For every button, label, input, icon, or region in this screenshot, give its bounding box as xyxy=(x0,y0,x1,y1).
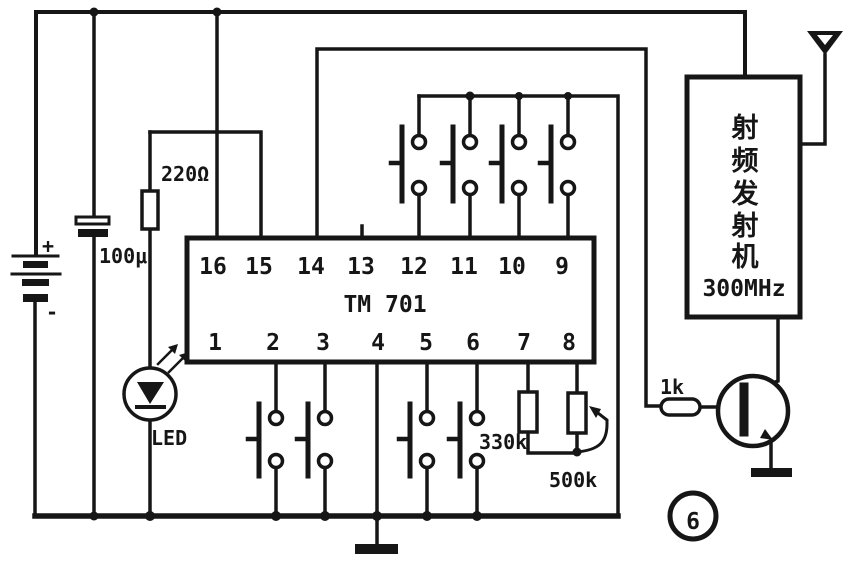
contact xyxy=(413,136,426,149)
transistor-circle xyxy=(718,376,788,446)
schematic-page: + - 100μ 220Ω LED TM 701 16 15 14 13 12 … xyxy=(0,0,855,571)
antenna-feed-wire xyxy=(800,55,825,144)
pushbutton-pin10 xyxy=(491,96,526,238)
ic-pin-11: 11 xyxy=(450,254,478,280)
potentiometer-label: 500k xyxy=(549,468,597,492)
ic-tm701: TM 701 16 15 14 13 12 11 10 9 1 2 3 4 5 … xyxy=(187,238,594,362)
ground-bar xyxy=(355,544,398,554)
contact xyxy=(270,455,283,468)
resistor-330k-label: 330k xyxy=(479,430,527,454)
junction-dot xyxy=(145,511,155,521)
resistor-1k: 1k xyxy=(660,375,700,415)
antenna-icon xyxy=(807,31,843,55)
ic-name: TM 701 xyxy=(343,292,426,318)
pushbuttons-bottom-row xyxy=(248,362,484,516)
capacitor-label: 100μ xyxy=(99,244,147,268)
battery-plate-short-3 xyxy=(23,294,48,302)
resistor-330k-body xyxy=(519,392,537,432)
resistor-220-body xyxy=(142,191,158,229)
led-label: LED xyxy=(151,426,187,450)
rf-name-char-3: 发 xyxy=(731,178,759,210)
battery-plate-short-2 xyxy=(22,279,49,286)
ic-pin-12: 12 xyxy=(400,254,428,280)
ic-pin-1: 1 xyxy=(208,330,222,356)
pushbutton-pin11 xyxy=(442,96,477,238)
junction-dot xyxy=(213,8,222,17)
circuit-schematic: + - 100μ 220Ω LED TM 701 16 15 14 13 12 … xyxy=(0,0,855,571)
pushbutton-pin9 xyxy=(540,96,575,238)
junction-dot xyxy=(271,511,281,521)
rf-frequency-label: 300MHz xyxy=(702,276,785,302)
contact xyxy=(270,412,283,425)
potentiometer-wiper-arrow xyxy=(589,406,601,418)
battery-plus-label: + xyxy=(42,234,54,258)
rf-name-char-1: 射 xyxy=(731,113,759,144)
junction-dot xyxy=(90,8,99,17)
resistor-220-label: 220Ω xyxy=(161,162,209,186)
pushbuttons-top-row xyxy=(391,96,575,238)
figure-number-badge: 6 xyxy=(670,493,716,539)
ic-pin-7: 7 xyxy=(517,330,531,356)
junction-dot xyxy=(515,92,523,100)
potentiometer-500k: 500k xyxy=(549,362,607,492)
pushbutton-pin5 xyxy=(399,362,434,516)
ic-pin-2: 2 xyxy=(266,330,280,356)
rf-name-char-4: 射 xyxy=(731,211,759,242)
rf-transmitter-box: 射 频 发 射 机 300MHz xyxy=(687,77,800,317)
contact xyxy=(562,182,575,195)
junction-dot xyxy=(372,511,382,521)
contact xyxy=(513,136,526,149)
ground-symbol-emitter xyxy=(751,468,792,477)
ic-pin-16: 16 xyxy=(199,254,227,280)
resistor-220: 220Ω xyxy=(142,162,209,229)
contact xyxy=(421,455,434,468)
ic-pin-13: 13 xyxy=(347,254,375,280)
junction-dot xyxy=(573,448,582,457)
ic-pin-4: 4 xyxy=(371,330,385,356)
contact xyxy=(319,412,332,425)
led: LED xyxy=(124,344,189,450)
battery-minus-label: - xyxy=(46,300,58,324)
contact xyxy=(471,412,484,425)
junction-dot xyxy=(422,511,432,521)
junction-dot xyxy=(90,512,99,521)
ground-bar xyxy=(751,468,792,477)
contact xyxy=(513,182,526,195)
resistor-1k-body xyxy=(661,399,700,415)
contact xyxy=(464,136,477,149)
junction-dot xyxy=(466,92,475,101)
resistor-330k: 330k xyxy=(479,362,577,454)
ic-pin-3: 3 xyxy=(316,330,330,356)
junction-dot xyxy=(472,511,482,521)
capacitor-100u: 100μ xyxy=(76,217,147,268)
ground-symbol-main xyxy=(355,544,398,554)
pushbutton-pin12 xyxy=(391,96,426,238)
contact xyxy=(319,455,332,468)
pushbutton-pin3 xyxy=(297,362,332,516)
ic-pin-9: 9 xyxy=(555,254,569,280)
pushbutton-pin2 xyxy=(248,362,283,516)
junction-dot xyxy=(564,92,572,100)
contact xyxy=(421,412,434,425)
ic-pin-5: 5 xyxy=(419,330,433,356)
figure-number-text: 6 xyxy=(686,509,700,535)
ic-pin-8: 8 xyxy=(562,330,576,356)
capacitor-plate-top xyxy=(76,217,109,224)
junction-dot xyxy=(320,511,330,521)
rf-name-char-2: 频 xyxy=(732,146,759,177)
contact xyxy=(471,455,484,468)
transistor xyxy=(718,376,788,446)
resistor-1k-label: 1k xyxy=(660,375,684,399)
potentiometer-body xyxy=(568,393,586,433)
rf-name-char-5: 机 xyxy=(732,242,759,273)
ic-pin-6: 6 xyxy=(466,330,480,356)
capacitor-plate-bottom xyxy=(78,229,108,237)
ic-pin-10: 10 xyxy=(498,254,526,280)
ic-pin-14: 14 xyxy=(297,254,325,280)
contact xyxy=(413,182,426,195)
contact xyxy=(562,136,575,149)
contact xyxy=(464,182,477,195)
battery-plate-short-1 xyxy=(23,261,48,268)
ic-pin-15: 15 xyxy=(245,254,273,280)
